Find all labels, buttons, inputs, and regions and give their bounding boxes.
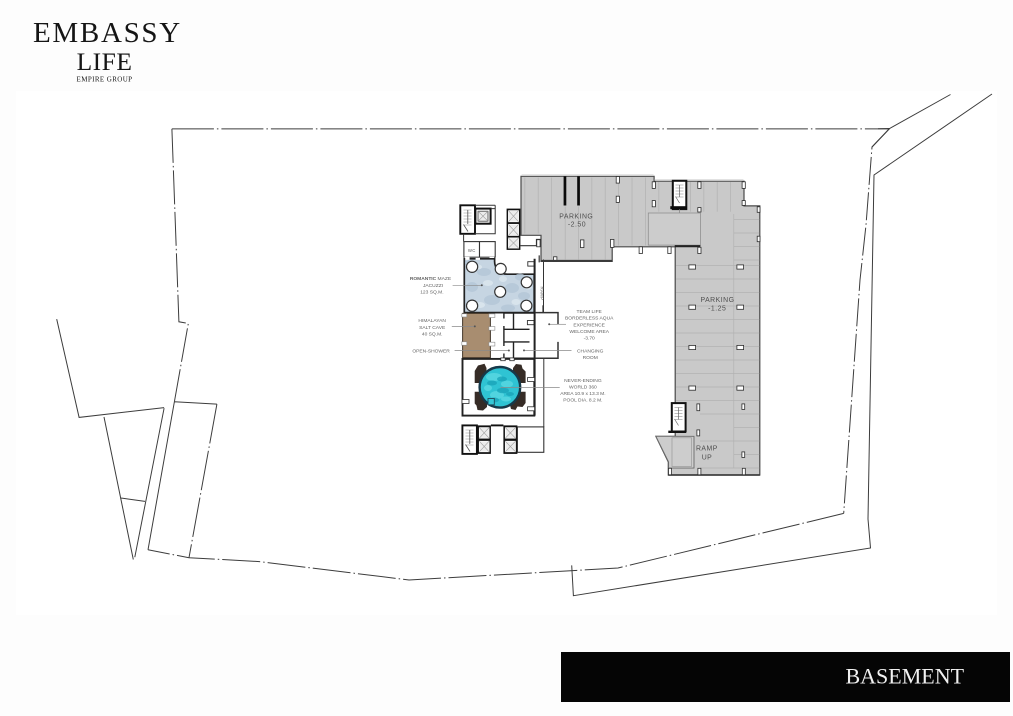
svg-text:POOL DIA. 8.2 M.: POOL DIA. 8.2 M. <box>563 398 602 404</box>
svg-text:JACUZZI: JACUZZI <box>423 283 443 289</box>
svg-text:123 SQ.M.: 123 SQ.M. <box>420 290 443 296</box>
svg-text:OPEN-SHOWER: OPEN-SHOWER <box>412 348 450 354</box>
svg-text:SALT CAVE: SALT CAVE <box>419 325 446 331</box>
svg-text:40 SQ.M.: 40 SQ.M. <box>422 332 443 338</box>
svg-text:LIFE: LIFE <box>77 47 133 76</box>
svg-text:RAMP: RAMP <box>696 445 718 452</box>
svg-text:RAMP: RAMP <box>540 287 545 301</box>
svg-text:CHANGING: CHANGING <box>577 348 604 354</box>
svg-text:ROOM: ROOM <box>583 355 598 361</box>
svg-text:BORDERLESS AQUA: BORDERLESS AQUA <box>565 316 614 322</box>
svg-text:UP: UP <box>702 455 713 462</box>
svg-text:-2.50: -2.50 <box>568 222 586 229</box>
svg-text:PARKING: PARKING <box>700 297 734 304</box>
svg-text:AREA 10.9 x 13.3 M.: AREA 10.9 x 13.3 M. <box>560 391 605 397</box>
svg-text:-1.25: -1.25 <box>708 306 726 313</box>
svg-text:WORLD 360: WORLD 360 <box>569 385 597 391</box>
svg-text:WC: WC <box>468 248 476 253</box>
svg-text:WELCOME AREA: WELCOME AREA <box>569 329 609 335</box>
svg-text:TEAM LIFE: TEAM LIFE <box>577 309 603 315</box>
svg-text:BASEMENT: BASEMENT <box>846 664 965 689</box>
svg-text:EXPERIENCE: EXPERIENCE <box>573 322 605 328</box>
svg-text:NEVER-ENDING: NEVER-ENDING <box>564 378 602 384</box>
svg-text:EMBASSY: EMBASSY <box>33 17 182 49</box>
svg-text:-3.70: -3.70 <box>584 336 595 342</box>
svg-text:HIMALAYAN: HIMALAYAN <box>418 318 446 324</box>
svg-text:PARKING: PARKING <box>559 213 593 220</box>
svg-text:ROMANTIC MAZE: ROMANTIC MAZE <box>410 276 452 282</box>
svg-text:EMPIRE GROUP: EMPIRE GROUP <box>77 76 133 84</box>
